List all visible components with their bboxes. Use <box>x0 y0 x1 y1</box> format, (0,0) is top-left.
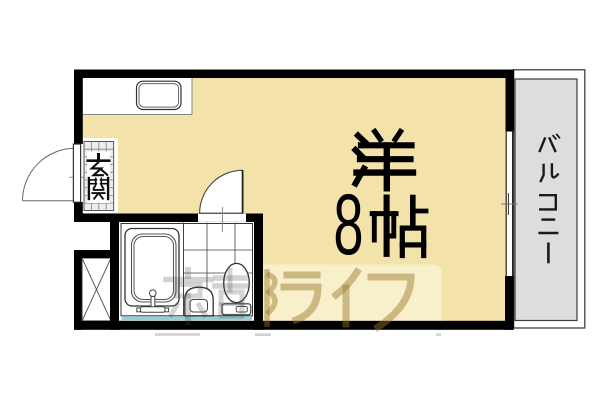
svg-text:8: 8 <box>333 177 363 273</box>
